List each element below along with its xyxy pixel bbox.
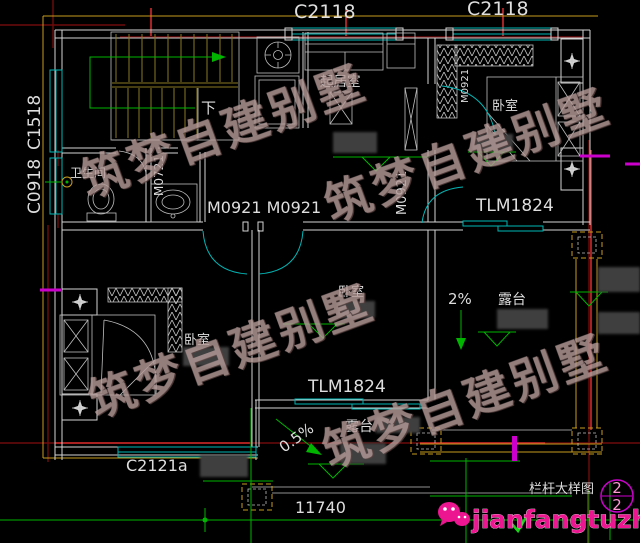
window-label-c2118-left: C2118 <box>294 1 356 23</box>
window-label-c0918: C0918 <box>25 159 45 214</box>
door-label-tlm1824-right: TLM1824 <box>475 196 554 216</box>
railing-detail-mark <box>512 436 517 461</box>
door-label-m0921-pair: M0921 M0921 <box>207 198 321 217</box>
window-label-c1518: C1518 <box>25 95 45 150</box>
logo-text: jianfangtuzhi <box>471 505 640 534</box>
room-label-terrace-right: 露台 <box>498 292 526 308</box>
slope-label-right: 2% <box>448 290 472 308</box>
railing-detail-title: 栏杆大样图 <box>529 482 594 497</box>
cad-floor-plan: C2118 C2118 C1518 C0918 C2121a 下 起居室 卫生间… <box>0 0 640 543</box>
sheet-number-top: 2 <box>612 479 622 497</box>
wardrobe <box>455 45 533 66</box>
window-label-c2121a: C2121a <box>126 456 188 475</box>
overall-dimension-label: 11740 <box>295 498 346 517</box>
door-label-tlm1824-bottom: TLM1824 <box>307 377 386 397</box>
window-label-c2118-right: C2118 <box>467 0 529 20</box>
door-label-m0921-bedroom: M0921 <box>460 69 471 103</box>
floor-plan-canvas: C2118 C2118 C1518 C0918 C2121a 下 起居室 卫生间… <box>0 0 640 543</box>
